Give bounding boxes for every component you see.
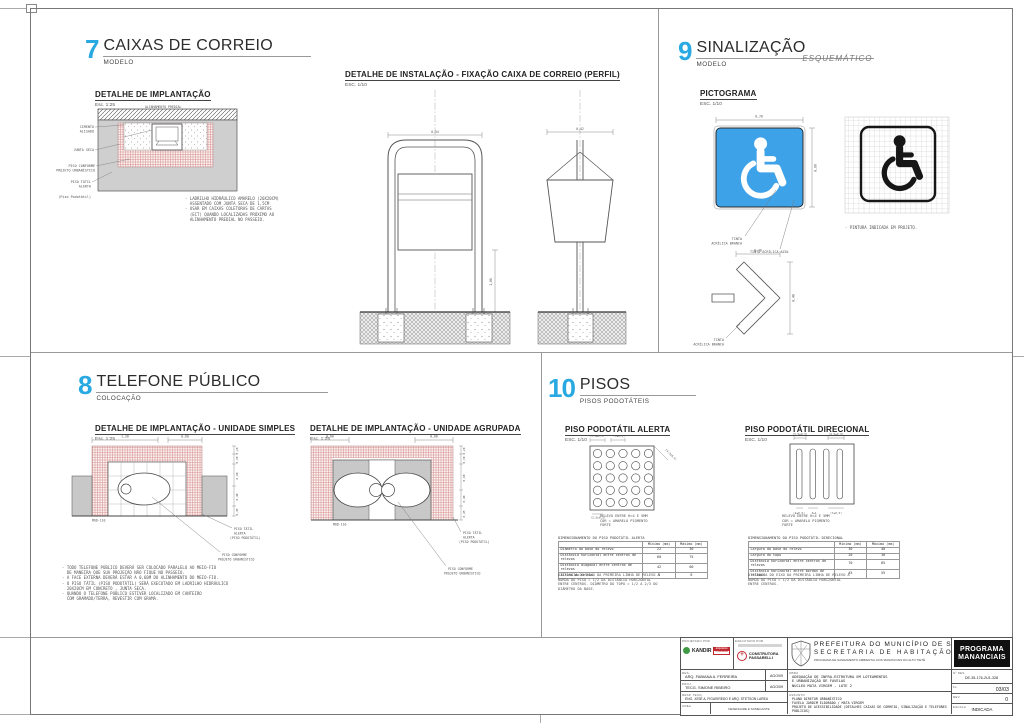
technician-date: AGO/09 [766, 685, 787, 689]
dir-relief-note: RELEVO ENTRE H=4 E 5MMCOR = AMARELO PIGM… [782, 514, 830, 528]
profile-width-dim: 0,42 [576, 127, 584, 131]
phone-notes: - TODO TELEFONE PÚBLICO DEVERÁ SER COLOC… [62, 565, 228, 601]
panel-8-subtitle: COLOCAÇÃO [96, 395, 328, 402]
accessibility-sign-grid [843, 115, 953, 220]
d1-gray-left [72, 476, 92, 516]
scale-value: INDICADA [952, 707, 1012, 712]
front-width-dim: 0,54 [431, 130, 439, 134]
obra-text: ADEQUAÇÃO DE INFRA-ESTRUTURA EM LOTEAMEN… [792, 675, 887, 689]
section-divider-vertical-top [658, 9, 659, 352]
drawing-number-cell: Nº DES. DE-35-176-2U1-328 [952, 670, 1012, 684]
alert-dim-1: (7±0,5) [613, 434, 625, 438]
executed-by-cell: EXECUTADO POR + CONSTRUTORA PASSARELLI [734, 638, 788, 670]
technician-date-cell: AGO/09 [766, 681, 788, 692]
construtora-line2: PASSARELLI [749, 656, 778, 660]
dir-dim-1: (4,5±0,5) [828, 432, 843, 436]
prefeitura-cell: PREFEITURA DO MUNICÍPIO DE SÃO PAULO SEC… [788, 638, 952, 670]
panel-8-title: TELEFONE PÚBLICO [96, 374, 328, 392]
programa-line2: MANANCIAIS [954, 654, 1010, 662]
passarelli-logo-icon: + [737, 651, 747, 661]
sign-width-dim: 0,70 [755, 115, 763, 119]
crea-value-cell: DESENHARE E SOMECANTE [711, 703, 788, 714]
alert-tactile-tile-drawing: (3,5±0,5) (7±0,5) (4,5±0,5) (2,5±0,5) [555, 432, 705, 520]
panel-10-title: PISOS [580, 377, 696, 395]
label-piso-tatil: PISO TÁTIL [71, 179, 91, 184]
drawing-number-label: Nº DES. [953, 671, 966, 675]
programa-line1: PROGRAMA [954, 646, 1010, 654]
height-dim: 1,06 [489, 278, 493, 286]
technician-row: PROJ. TECG. SIMONE RIBEIRO [681, 681, 766, 692]
arrow-leader [726, 324, 740, 338]
d1-rdim-2: 0,90 [235, 472, 239, 479]
d2-dim-right: 0,60 [430, 435, 438, 439]
section-divider-horizontal [31, 352, 1012, 353]
mailbox-implantation-drawing: ALINHAMENTO PREDIAL CIMENTO ALISADO JUNT… [40, 104, 305, 244]
building-wall-hatch [98, 109, 237, 120]
d1-lbl-piso-1: PISO CONFORME [222, 553, 247, 557]
d2-lbl-alerta-2: ALERTA [463, 536, 475, 540]
mailbox-profile [547, 180, 613, 242]
arrow-shape [712, 262, 780, 334]
alert-dim-0: (3,5±0,5) [589, 434, 604, 438]
assunto-cell: ASSUNTO PLANO DIRETOR URBANÍSTICOFAVELA … [788, 692, 952, 714]
dir-dim-4: (7±0,5) [830, 511, 842, 515]
d1-dim-060: 0,60 [181, 435, 189, 439]
alert-top-dims [590, 438, 625, 442]
alert-table-title: DIMENSIONAMENTO DO PISO PODOTÁTIL ALERTA [558, 536, 645, 540]
d1-lbl-piso-2: PROJETO URBANÍSTICO [218, 557, 255, 562]
d1-rdim-1: 0,30 [235, 456, 239, 463]
mailbox-body [398, 174, 472, 250]
title-block: PROJETADO POR KANDIR arquitetos urbanist… [680, 637, 1013, 716]
revision-label: REV. [953, 695, 961, 699]
scale-cell: ESCALA INDICADA [952, 704, 1012, 714]
footing-right [466, 314, 492, 342]
dir-footnote: DISTÂNCIA DO EIXO DA PRIMEIRA LINHA DE R… [748, 573, 850, 587]
kandir-logo-icon [683, 647, 690, 654]
drawing-sheet: 7 CAIXAS DE CORREIO MODELO DETALHE DE IM… [0, 0, 1024, 723]
alert-footnote: DISTÂNCIA DO EIXO DA PRIMEIRA LINHA DE R… [558, 573, 660, 592]
panel-10-subtitle: PISOS PODOTÁTEIS [580, 398, 696, 405]
fold-mark [0, 356, 30, 357]
arrow-label-2: ACRÍLICA BRANCA [693, 342, 724, 347]
programa-mananciais-badge: PROGRAMA MANANCIAIS [954, 640, 1010, 667]
panel-8-heading: 8 TELEFONE PÚBLICO COLOCAÇÃO [78, 374, 328, 402]
crea-label-cell: CREA [681, 703, 711, 714]
accessibility-sign-blue: 0,70 0,60 TINTA ACRÍLICA BRANCA TINTA AC… [690, 100, 850, 260]
phone-grouped-drawing: 0,60 0,60 MOD-110 0,20 0,30 0,90 0,40 0,… [303, 432, 543, 580]
panel-7-subtitle: MODELO [103, 59, 311, 66]
fold-mark [540, 715, 541, 723]
panel-10-heading: 10 PISOS PISOS PODOTÁTEIS [548, 377, 696, 405]
d2-dim-left: 0,60 [326, 435, 334, 439]
programa-cell: PROGRAMA MANANCIAIS [952, 638, 1012, 670]
label-tinta-branca-1: TINTA [732, 237, 742, 241]
d2-mod-label: MOD-110 [333, 523, 347, 527]
d2-lbl-piso-2: PROJETO URBANÍSTICO [444, 571, 481, 576]
d2-rdim-0: 0,20 [462, 447, 466, 454]
d2-post-left [370, 484, 383, 497]
fold-mark [0, 637, 30, 638]
d1-dim-120: 1,20 [121, 435, 129, 439]
kandir-logo-text: KANDIR [692, 648, 711, 654]
designer-row: DES. ARQ. FABIANA A. FERREIRA [681, 670, 766, 681]
sheet-number-label: FL. [953, 685, 958, 689]
d1-rdim-4: 0,45 [235, 508, 239, 515]
prefeitura-line3: PROGRAMA DE SANEAMENTO AMBIENTAL DOS MAN… [814, 658, 952, 662]
fold-mark [1013, 356, 1024, 357]
label-alerta: ALERTA [79, 185, 91, 189]
city-crest-icon [790, 640, 812, 667]
sign-height-dim: 0,60 [814, 164, 818, 172]
panel-7-number: 7 [85, 38, 98, 60]
panel-9-number: 9 [678, 40, 691, 62]
directional-tactile-tile-drawing: (3,5±0,5) (4,5±0,5) (2±0,5) 3±1 (7±0,5) [750, 428, 910, 520]
panel-7-title: CAIXAS DE CORREIO [103, 38, 311, 56]
label-tinta-branca-2: ACRÍLICA BRANCA [711, 241, 742, 246]
assunto-text: PLANO DIRETOR URBANÍSTICOFAVELA JARDIM E… [792, 697, 951, 713]
designed-by-cell: PROJETADO POR KANDIR arquitetos urbanist… [681, 638, 734, 670]
designed-by-label: PROJETADO POR [682, 639, 710, 643]
designer-date: AGO/09 [766, 674, 787, 678]
arquitetos-urbanistas-logo: arquitetos urbanistas [713, 647, 729, 655]
designer-name: ARQ. FABIANA A. FERREIRA [685, 674, 737, 679]
designer-date-cell: AGO/09 [766, 670, 788, 681]
wall-alignment-label: ALINHAMENTO PREDIAL [145, 105, 182, 109]
responsible-row: RESP. TECN. ENG. JOSÉ A. FIGUEIREDO E AR… [681, 692, 788, 703]
pictogram-note: - PINTURA INDICADA EM PROJETO. [845, 225, 917, 230]
d2-rdim-2: 0,90 [462, 474, 466, 481]
arq-logo-line2: urbanistas [714, 651, 728, 654]
d1-lbl-alerta-3: (PISO PODOTÁTIL) [230, 535, 261, 540]
dir-table-title: DIMENSIONAMENTO DO PISO PODOTÁTIL DIRECI… [748, 536, 843, 540]
executed-by-label: EXECUTADO POR [735, 639, 763, 643]
d1-lbl-alerta-1: PISO TÁTIL [234, 526, 253, 531]
d2-lbl-alerta-3: (PISO PODOTÁTIL) [459, 539, 490, 544]
d2-rdim-1: 0,30 [462, 456, 466, 463]
crea-label: CREA [682, 704, 691, 708]
fold-mark [0, 714, 30, 715]
sheet-number: 03/03 [996, 687, 1009, 693]
label-cimento: CIMENTO [80, 125, 94, 129]
panel-9-tag: ESQUEMÁTICO [802, 54, 872, 63]
small-logo-lines [738, 644, 782, 647]
d1-phone-post [121, 484, 131, 494]
alert-dim-2: (4,5±0,5) [664, 448, 678, 462]
d2-rdim-3: 0,40 [462, 495, 466, 502]
panel-8-number: 8 [78, 374, 91, 396]
installation-detail-title: DETALHE DE INSTALAÇÃO - FIXAÇÃO CAIXA DE… [345, 70, 620, 81]
d2-post-right [382, 484, 395, 497]
footing-left [378, 314, 404, 342]
panel-7-heading: 7 CAIXAS DE CORREIO MODELO [85, 38, 311, 66]
alert-relief-note: RELEVO ENTRE H=4 E 5MMCOR = AMARELO PIGM… [600, 514, 648, 528]
d2-rdim-4: 0,45 [462, 510, 466, 517]
mailbox-installation-drawing: 0,54 1,06 0,42 [340, 82, 650, 350]
revision-cell: REV. 0 [952, 694, 1012, 704]
d2-lbl-piso-1: PISO CONFORME [448, 567, 473, 571]
label-piso-conforme: PISO CONFORME [68, 164, 95, 168]
dir-dim-0: (3,5±0,5) [792, 432, 807, 436]
mailbox-plan [152, 124, 182, 150]
label-junta-seca: JUNTA SECA [74, 148, 94, 152]
implantation-detail-title: DETALHE DE IMPLANTAÇÃO [95, 90, 211, 101]
label-podotatil: (Piso Podotátil) [58, 195, 91, 199]
implantation-notes: - LADRILHO HIDRÁULICO AMARELO (20X20CM) … [185, 196, 279, 222]
phone-simple-drawing: 1,20 0,60 MOD-110 0,20 0,30 0,90 0,40 0,… [72, 432, 312, 572]
crea-value: DESENHARE E SOMECANTE [711, 707, 787, 711]
arrow-width-dim: 0,40 [754, 249, 762, 253]
d1-mod-label: MOD-110 [92, 519, 106, 523]
footing-profile [568, 314, 593, 342]
panel-9-heading: 9 SINALIZAÇÃO MODELO ESQUEMÁTICO [678, 40, 874, 68]
sheet-number-cell: FL. 03/03 [952, 684, 1012, 694]
d1-rdim-3: 0,40 [235, 493, 239, 500]
responsible-names: ENG. JOSÉ A. FIGUEIREDO E ARQ. STETSON L… [685, 697, 768, 701]
d2-lbl-alerta-1: PISO TÁTIL [463, 530, 482, 535]
pictogram-title: PICTOGRAMA [700, 89, 757, 100]
obra-cell: OBRA ADEQUAÇÃO DE INFRA-ESTRUTURA EM LOT… [788, 670, 952, 692]
panel-10-number: 10 [548, 377, 575, 399]
d1-right-dim-chain [232, 446, 236, 516]
d1-gray-right [202, 476, 227, 516]
prefeitura-line1: PREFEITURA DO MUNICÍPIO DE SÃO PAULO [814, 641, 952, 648]
label-alisado: ALISADO [80, 130, 94, 134]
prefeitura-line2: SECRETARIA DE HABITAÇÃO [814, 649, 952, 656]
direction-arrow-drawing: 0,40 0,40 TINTA ACRÍLICA BRANCA [690, 248, 820, 348]
arrow-height-dim: 0,40 [792, 294, 796, 302]
dir-top-dims [794, 436, 844, 440]
d1-rdim-0: 0,20 [235, 447, 239, 454]
d1-lbl-alerta-2: ALERTA [234, 532, 246, 536]
revision-number: 0 [1005, 697, 1008, 703]
label-projeto-urbanistico: PROJETO URBANÍSTICO [56, 168, 95, 173]
arrow-label-1: TINTA [714, 338, 724, 342]
drawing-number: DE-35-176-2U1-328 [952, 676, 1011, 680]
technician-name: TECG. SIMONE RIBEIRO [685, 685, 730, 690]
